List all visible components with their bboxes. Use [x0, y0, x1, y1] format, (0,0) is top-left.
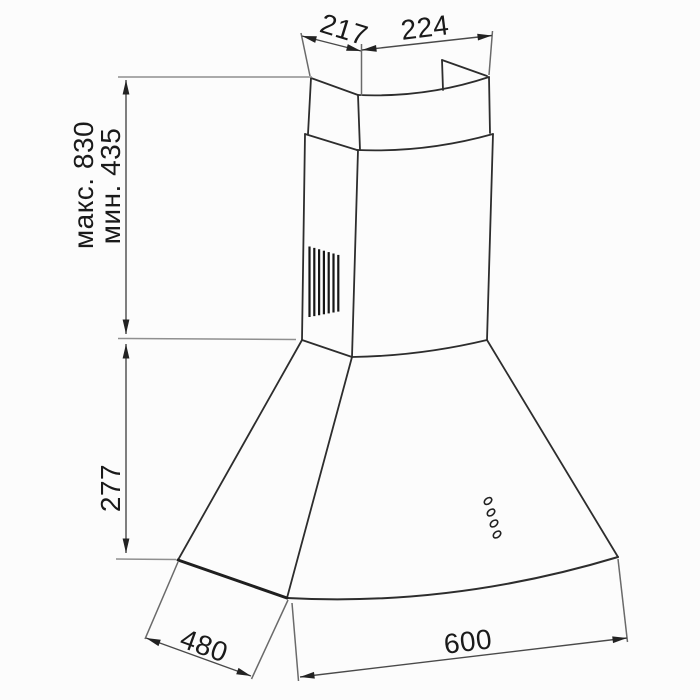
vent-grille: [310, 247, 339, 318]
dimension-label-height-min: мин. 435: [95, 128, 126, 245]
hood-canopy: [178, 340, 618, 599]
dimension-label-top-duct-depth: 217: [317, 8, 372, 52]
dimension-label-top-duct-width: 224: [399, 9, 451, 46]
lower-chimney-duct: [302, 134, 493, 357]
dimension-label-canopy-height: 277: [95, 464, 126, 512]
technical-drawing-page: макс. 830 мин. 435 277 217 224 480 600: [0, 0, 700, 700]
control-buttons: [483, 496, 502, 539]
dimension-label-canopy-width: 600: [442, 623, 494, 660]
dimension-label-canopy-depth: 480: [176, 623, 232, 669]
upper-chimney-duct: [308, 60, 490, 150]
hood-dimension-drawing: макс. 830 мин. 435 277 217 224 480 600: [0, 0, 700, 700]
